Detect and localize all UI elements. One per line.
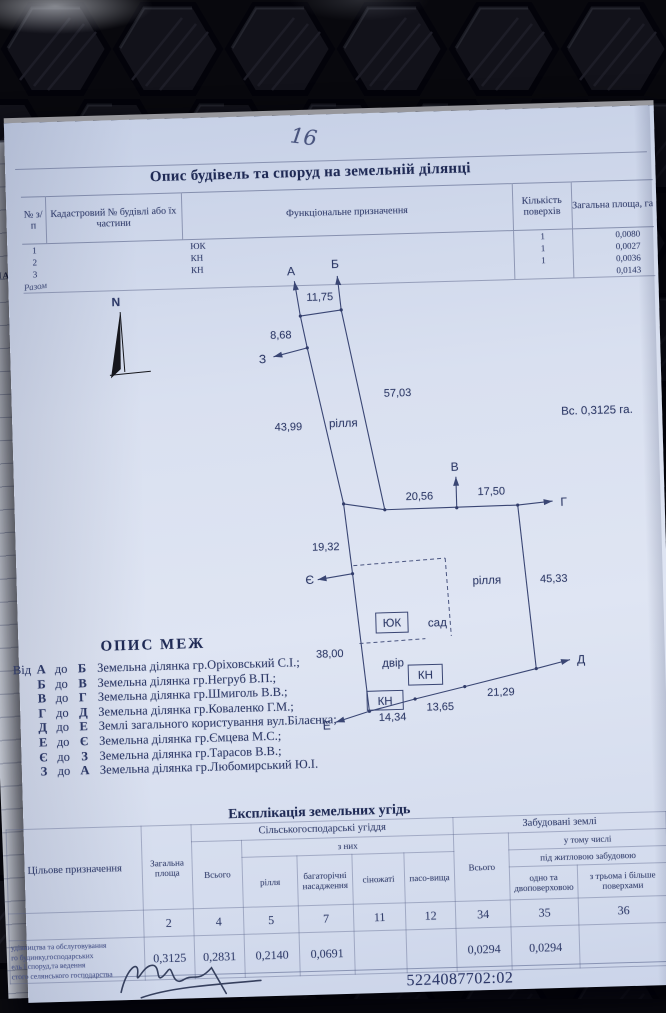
cadastral-number: 5224087702:02 xyxy=(380,969,540,991)
row-cadastral xyxy=(47,276,183,292)
col-num: 5 xyxy=(243,906,299,935)
border-to: Г xyxy=(74,690,92,705)
north-arrow: N xyxy=(108,294,151,378)
border-from: Д xyxy=(35,721,51,736)
header-total-area-line1: Загальна xyxy=(143,857,190,868)
point-g-label: Г xyxy=(560,495,567,509)
buildings-table: № з/п Кадастровий № будівлі або їх части… xyxy=(21,179,655,294)
col-header-cadastral: Кадастровий № будівлі або їх частини xyxy=(45,193,182,244)
col-num: 2 xyxy=(143,909,194,937)
col-num: 36 xyxy=(578,895,666,925)
border-from: Б xyxy=(33,677,49,692)
length-right-slant: 57,03 xyxy=(384,387,412,400)
header-total-area-line2: площа xyxy=(144,867,191,878)
border-connector: до xyxy=(50,705,74,721)
border-to: Д xyxy=(74,705,92,720)
length-az: 8,68 xyxy=(270,329,292,342)
col-num: 4 xyxy=(193,907,244,935)
col-num xyxy=(8,910,144,941)
border-prefix: Від xyxy=(3,663,33,679)
col-header-num: № з/п xyxy=(21,197,46,245)
col-num: 11 xyxy=(353,903,406,931)
col-header-area: Загальна площа, га xyxy=(571,180,654,229)
border-connector: до xyxy=(49,662,73,678)
border-from: З xyxy=(36,764,52,779)
row-total-area: 0,0143 xyxy=(573,263,655,278)
borders-section-title: ОПИС МЕЖ xyxy=(100,636,205,656)
header-total-area: Загальна площа xyxy=(141,825,193,910)
explication-table: Цільове призначення Загальна площа Сільс… xyxy=(6,811,666,984)
border-from: Г xyxy=(34,706,50,721)
point-ye-label: Є xyxy=(305,573,314,587)
col-num: 12 xyxy=(405,901,456,929)
light-reflection-2 xyxy=(260,0,460,60)
borders-list: Від А до Б Земельна ділянка гр.Оріховськ… xyxy=(3,652,426,780)
border-connector: до xyxy=(51,749,75,765)
length-upper-left: 19,32 xyxy=(312,541,340,554)
border-to: З xyxy=(75,749,93,764)
point-z-label: З xyxy=(259,352,267,366)
border-connector: до xyxy=(51,720,75,736)
header-one-two-storey: одно та двоповерховою xyxy=(509,865,578,900)
garden-label: сад xyxy=(428,617,447,630)
border-from: Е xyxy=(35,735,51,750)
header-three-plus-storey: з трьома і більше поверхами xyxy=(577,863,666,899)
signature-scribble xyxy=(112,946,274,1010)
border-from: Є xyxy=(35,750,51,765)
border-to: Б xyxy=(73,661,91,676)
building-yuk-label: ЮК xyxy=(383,617,402,630)
point-v-label: В xyxy=(450,460,458,474)
border-to: А xyxy=(76,763,94,778)
land-use-arable-2: рілля xyxy=(472,575,501,588)
border-to: Е xyxy=(75,719,93,734)
light-reflection xyxy=(0,0,240,70)
border-from: А xyxy=(33,662,49,677)
length-vg2: 17,50 xyxy=(477,485,505,498)
border-connector: до xyxy=(51,734,75,750)
length-left-slant: 43,99 xyxy=(275,421,303,434)
length-bottom2: 13,65 xyxy=(426,701,454,714)
handwritten-page-number: 16 xyxy=(289,123,319,150)
border-from: В xyxy=(34,691,50,706)
border-connector: до xyxy=(52,764,76,780)
header-hayfields: сіножаті xyxy=(352,853,405,904)
border-connector: до xyxy=(50,691,74,707)
col-header-floors: Кількість поверхів xyxy=(512,182,572,231)
survey-document-page: 16 Опис будівель та споруд на земельній … xyxy=(4,105,666,1003)
length-vg1: 20,56 xyxy=(406,490,434,503)
header-perennial: багаторічні насадження xyxy=(297,854,353,906)
length-bottom3: 21,29 xyxy=(487,686,515,699)
border-to: В xyxy=(73,676,91,691)
col-num: 7 xyxy=(298,904,354,933)
row-num: 2 xyxy=(23,256,47,269)
header-agro-total: Всього xyxy=(191,840,243,908)
header-purpose: Цільове призначення xyxy=(6,826,143,914)
header-built-total: Всього xyxy=(453,833,510,902)
row-total-label: Разом xyxy=(23,279,48,295)
length-right-vert: 45,33 xyxy=(540,573,568,586)
header-pastures: пасо-вища xyxy=(404,851,455,902)
border-connector: до xyxy=(49,676,73,692)
point-d-label: Д xyxy=(577,652,586,666)
length-ab: 11,75 xyxy=(306,291,333,304)
col-num: 34 xyxy=(455,900,511,929)
total-area-note: Вс. 0,3125 га. xyxy=(561,404,633,418)
row-floors xyxy=(514,265,573,279)
border-to: Є xyxy=(75,734,93,749)
row-num: 1 xyxy=(22,244,46,257)
north-label: N xyxy=(111,295,120,309)
land-use-arable-1: рілля xyxy=(329,417,358,430)
col-num: 35 xyxy=(510,898,579,927)
header-arable: рілля xyxy=(242,856,298,908)
